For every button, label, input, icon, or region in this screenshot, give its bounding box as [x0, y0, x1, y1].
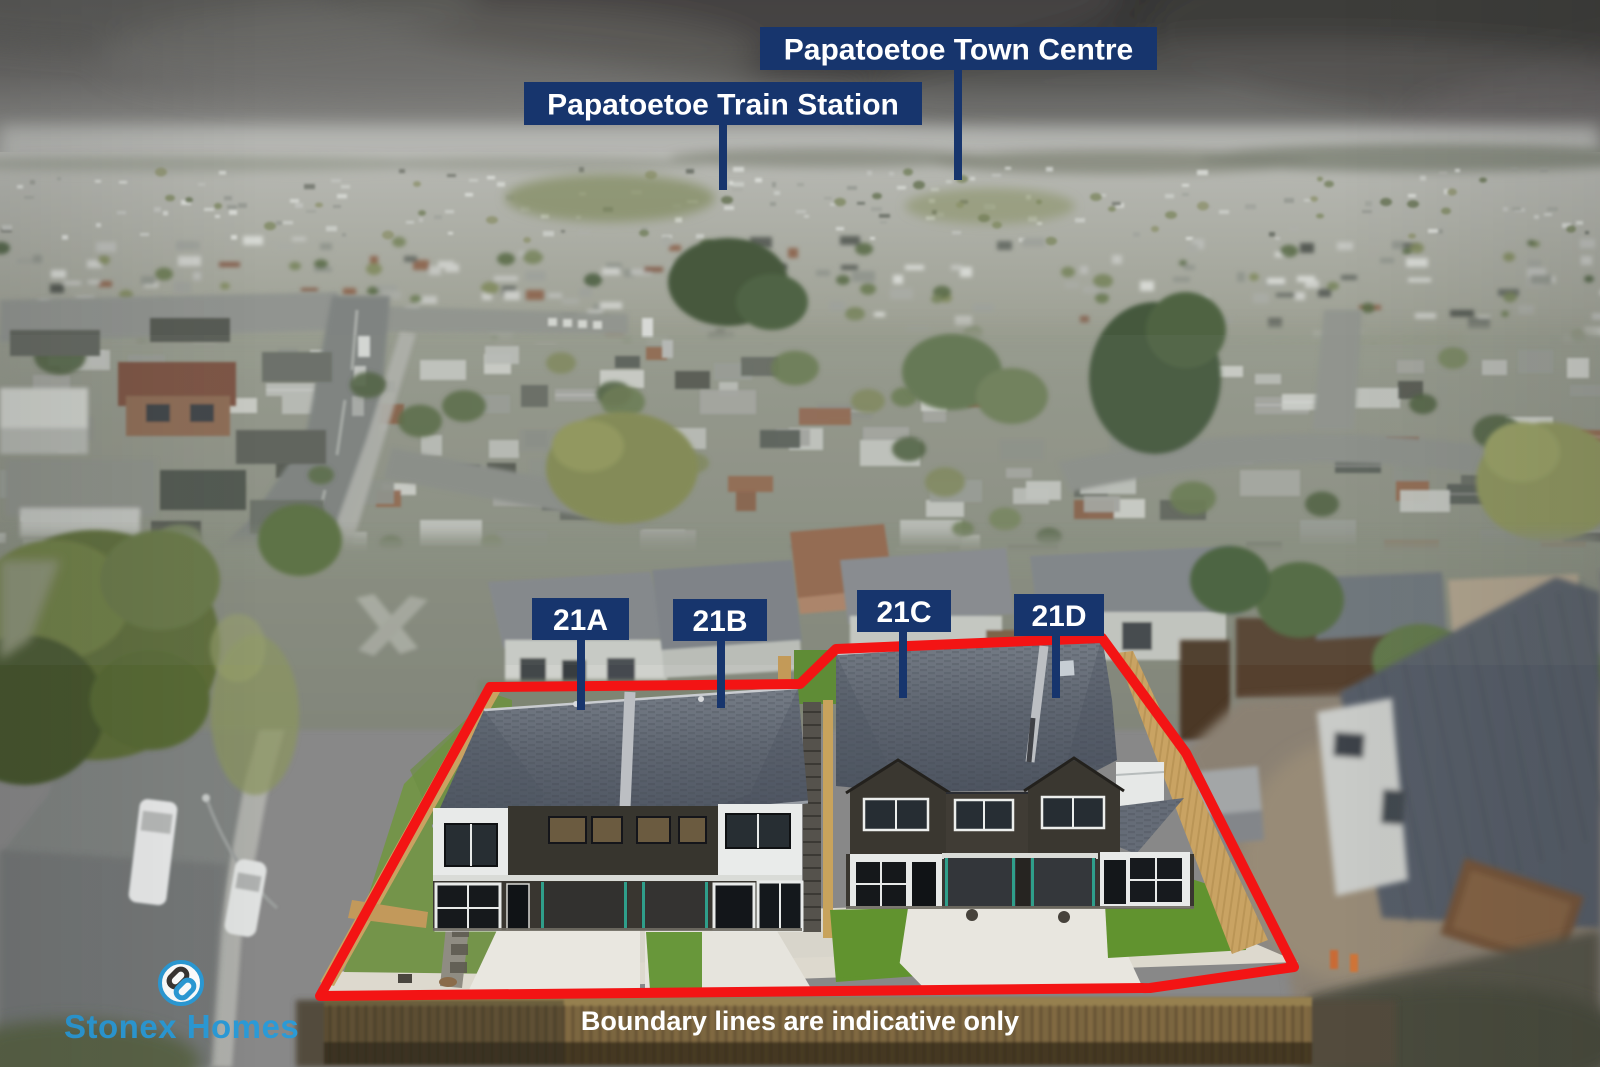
svg-text:21D: 21D	[1031, 600, 1086, 633]
svg-text:21A: 21A	[553, 604, 608, 637]
svg-text:21B: 21B	[692, 605, 747, 638]
svg-text:Papatoetoe Town Centre: Papatoetoe Town Centre	[784, 33, 1133, 66]
svg-text:Boundary lines are indicative: Boundary lines are indicative only	[581, 1006, 1019, 1036]
svg-text:Papatoetoe Train Station: Papatoetoe Train Station	[547, 88, 899, 121]
svg-text:21C: 21C	[876, 596, 931, 629]
